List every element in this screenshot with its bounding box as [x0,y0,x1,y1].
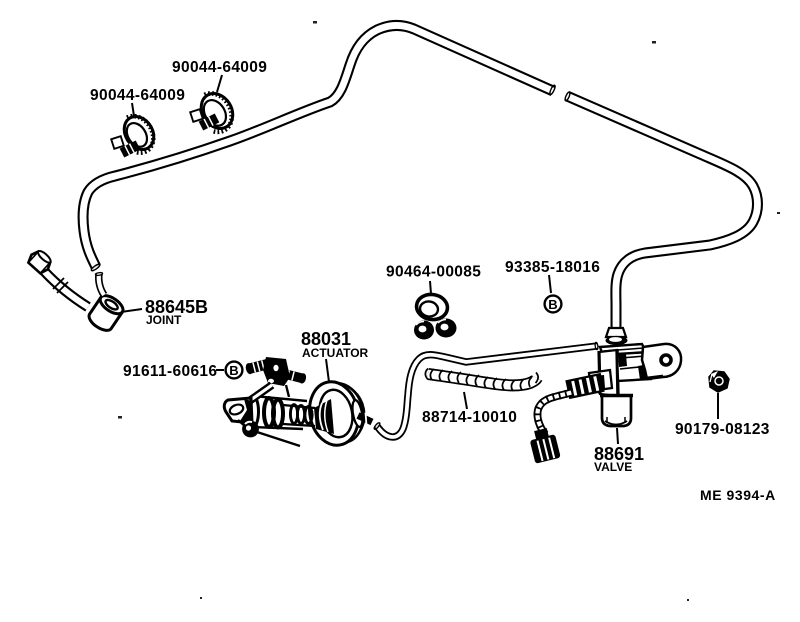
svg-text:90044-64009: 90044-64009 [172,59,267,76]
svg-text:ACTUATOR: ACTUATOR [302,346,369,360]
svg-text:VALVE: VALVE [594,460,632,474]
svg-text:B: B [548,297,557,312]
svg-text:90179-08123: 90179-08123 [675,421,770,438]
svg-text:ME 9394-A: ME 9394-A [700,487,776,503]
svg-text:90464-00085: 90464-00085 [386,264,481,281]
svg-text:JOINT: JOINT [146,313,182,327]
svg-text:91611-60616: 91611-60616 [123,363,217,380]
svg-text:90044-64009: 90044-64009 [90,87,185,104]
svg-text:B: B [229,363,238,378]
svg-text:88714-10010: 88714-10010 [422,409,517,426]
svg-text:93385-18016: 93385-18016 [505,259,600,276]
